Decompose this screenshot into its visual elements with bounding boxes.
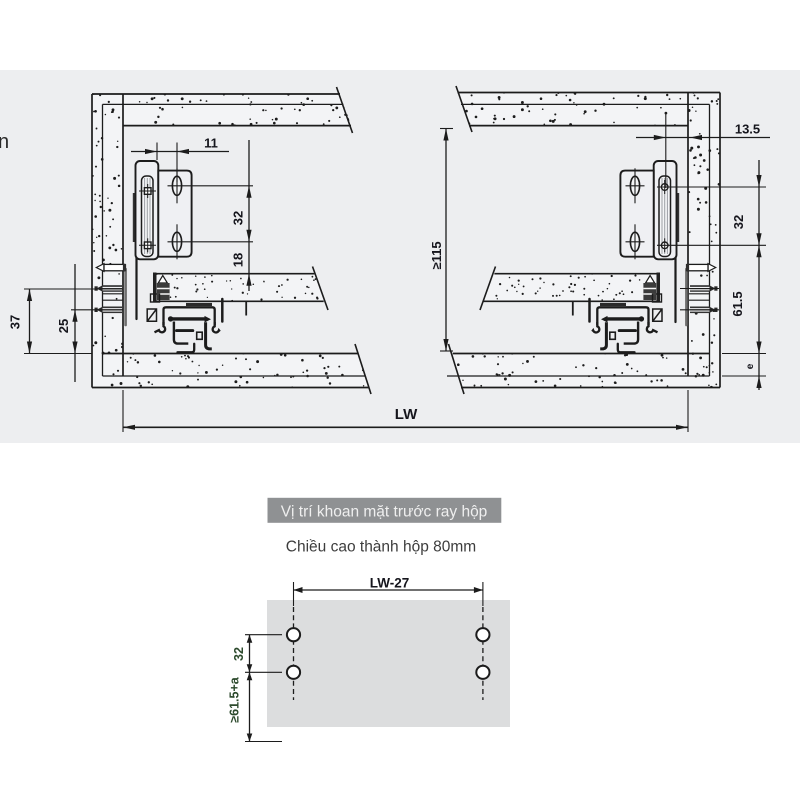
svg-text:LW: LW xyxy=(395,406,418,423)
svg-text:≥61.5+a: ≥61.5+a xyxy=(227,676,241,722)
svg-text:≥115: ≥115 xyxy=(429,241,444,269)
svg-text:32: 32 xyxy=(731,215,746,229)
svg-text:13.5: 13.5 xyxy=(735,122,760,137)
svg-text:37: 37 xyxy=(7,315,22,329)
svg-text:32: 32 xyxy=(232,647,246,661)
svg-text:n: n xyxy=(0,131,9,153)
svg-text:Vị trí khoan mặt trước ray hộp: Vị trí khoan mặt trước ray hộp xyxy=(281,504,488,521)
svg-text:11: 11 xyxy=(204,136,218,151)
svg-text:Chiều cao thành hộp 80mm: Chiều cao thành hộp 80mm xyxy=(286,539,476,556)
svg-text:e: e xyxy=(745,363,756,369)
svg-text:61.5: 61.5 xyxy=(730,291,745,316)
svg-text:32: 32 xyxy=(230,211,245,225)
svg-text:LW-27: LW-27 xyxy=(370,576,410,591)
svg-text:25: 25 xyxy=(56,319,71,333)
svg-text:18: 18 xyxy=(230,253,245,267)
